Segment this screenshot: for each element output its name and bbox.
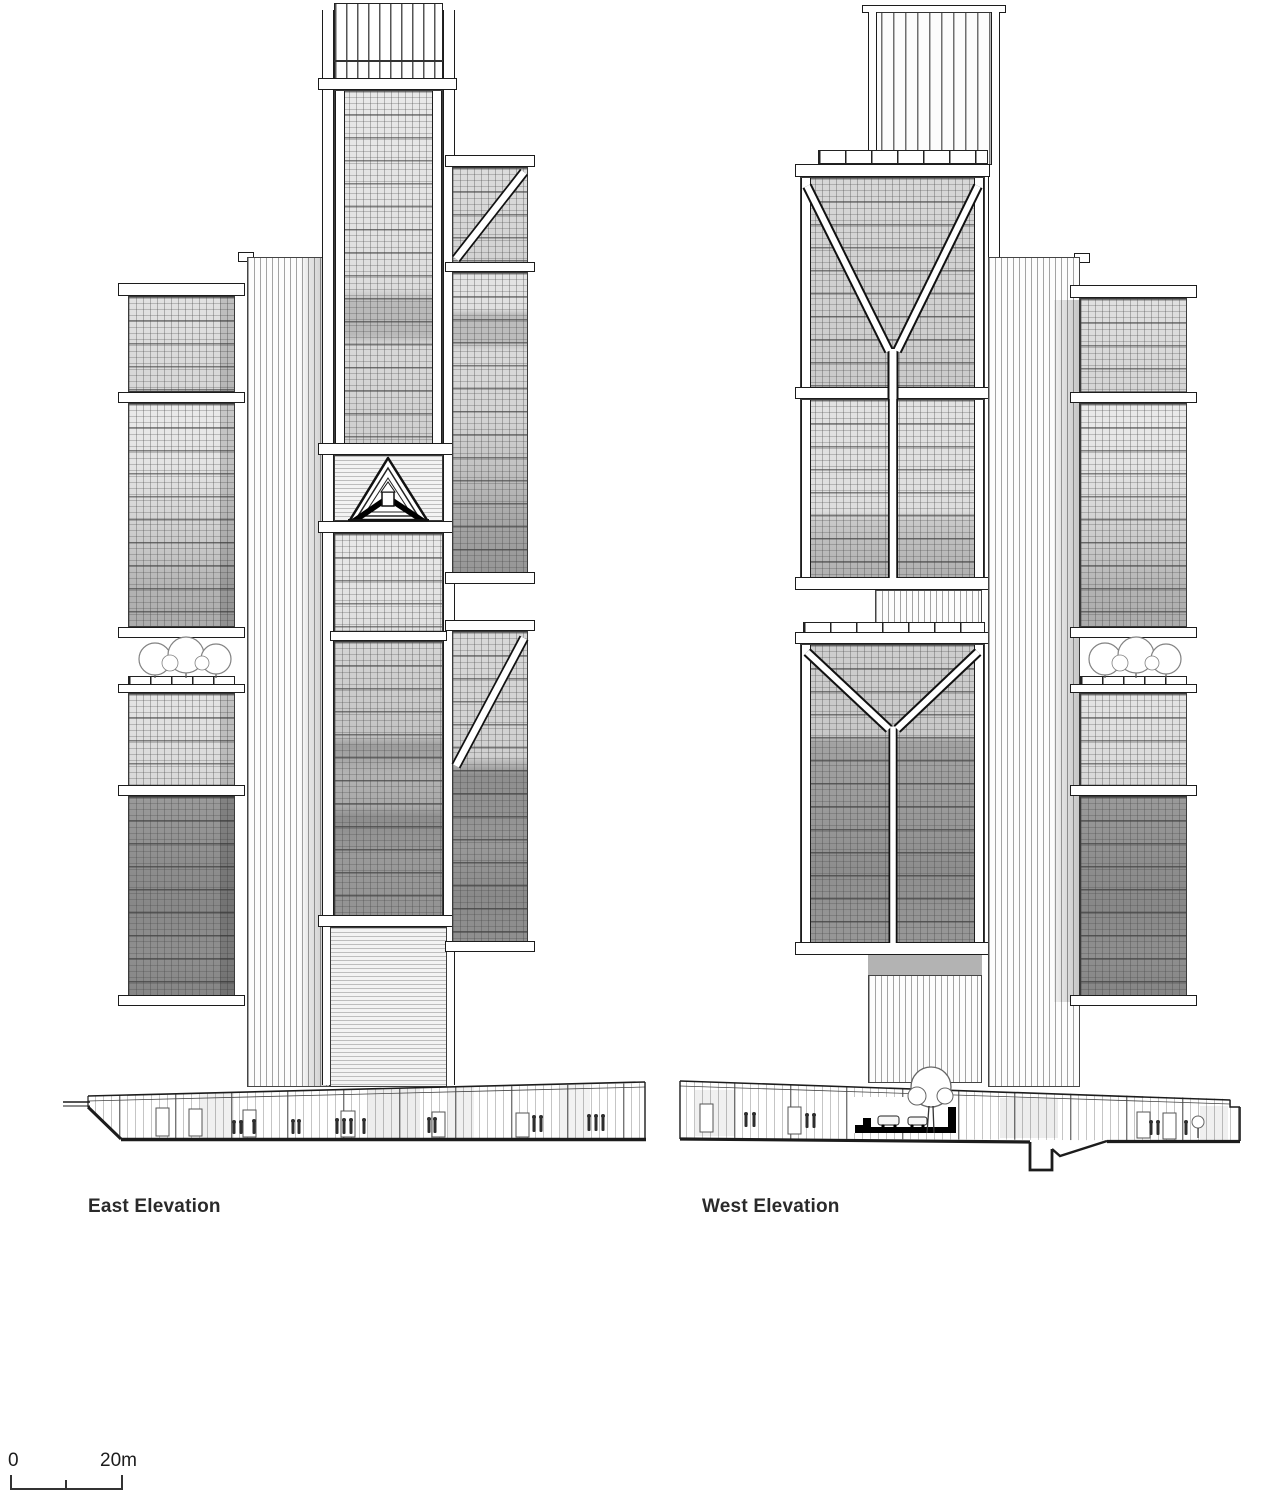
east-right-box-b xyxy=(452,272,528,573)
west-terrace-tree-icon xyxy=(1089,637,1181,678)
west-top-core-frame-right xyxy=(991,12,1000,165)
east-left-slab xyxy=(118,785,245,796)
west-left-slab xyxy=(795,632,990,644)
west-below-core xyxy=(868,975,982,1083)
east-tower-upper-box xyxy=(334,90,443,445)
west-mid-box-frame-right xyxy=(974,400,984,578)
west-left-slab xyxy=(795,387,990,399)
west-mid-box-frame-left xyxy=(801,400,811,578)
east-right-slab xyxy=(445,620,535,631)
east-right-box-c xyxy=(452,631,528,943)
west-mid-box xyxy=(800,399,985,579)
west-right-slab xyxy=(1070,627,1197,638)
east-upper-box-frame-right xyxy=(432,91,442,444)
west-elevation-label: West Elevation xyxy=(702,1196,840,1218)
east-right-slab xyxy=(445,941,535,952)
east-tower-slab xyxy=(330,631,447,641)
west-right-slab xyxy=(1070,684,1197,693)
scale-bar-tick xyxy=(10,1475,12,1489)
scale-end-label: 20m xyxy=(100,1450,137,1472)
west-left-slab xyxy=(795,164,990,177)
east-tower-louver-base xyxy=(330,927,447,1087)
west-main-core-shadow xyxy=(1054,300,1080,1002)
west-top-core xyxy=(868,12,1000,165)
east-upper-box-frame-left xyxy=(335,91,345,444)
east-elevation-label: East Elevation xyxy=(88,1196,221,1218)
east-tower-slab xyxy=(318,521,457,533)
west-right-slab xyxy=(1070,785,1197,796)
east-left-box-2 xyxy=(128,403,235,627)
east-left-box-4 xyxy=(128,796,235,996)
elevation-sheet: East Elevation West Elevation 0 20m xyxy=(0,0,1280,1497)
west-y-box-2-frame-left xyxy=(801,645,811,942)
west-right-box-4 xyxy=(1080,796,1187,996)
east-left-slab xyxy=(118,627,245,638)
east-right-slab xyxy=(445,572,535,584)
east-right-box-a xyxy=(452,167,528,263)
scale-bar-tick xyxy=(65,1480,67,1489)
east-right-slab xyxy=(445,262,535,272)
west-right-slab xyxy=(1070,285,1197,298)
east-left-slab xyxy=(118,684,245,693)
east-terrace-tree-icon xyxy=(139,637,231,678)
east-left-slab xyxy=(118,283,245,296)
east-left-box-3 xyxy=(128,693,235,786)
west-y-box-1-frame-left xyxy=(801,178,811,387)
west-podium-facade xyxy=(678,1076,1242,1172)
east-tower-lower-box xyxy=(334,641,443,917)
east-right-slab xyxy=(445,155,535,167)
scale-start-label: 0 xyxy=(8,1450,19,1472)
east-tower-crown-louvers xyxy=(334,3,443,79)
west-left-slab xyxy=(795,577,990,590)
east-left-box-1 xyxy=(128,296,235,392)
west-right-slab xyxy=(1070,995,1197,1006)
west-left-slab xyxy=(795,942,990,955)
west-right-box-2 xyxy=(1080,403,1187,627)
west-link-column xyxy=(988,165,1000,257)
east-tower-slab xyxy=(318,443,457,455)
scale-bar-line xyxy=(10,1488,123,1490)
scale-bar-tick xyxy=(121,1475,123,1489)
east-crown-rail xyxy=(334,60,443,62)
west-slat-row xyxy=(818,150,988,164)
east-tower-slab xyxy=(318,78,457,90)
west-top-core-frame-left xyxy=(868,12,877,165)
scale-bar: 0 20m xyxy=(8,1450,168,1494)
west-right-slab xyxy=(1070,392,1197,403)
west-y-box-1-frame-right xyxy=(974,178,984,387)
east-left-slab xyxy=(118,995,245,1006)
west-below-shadow xyxy=(868,955,982,975)
west-right-box-3 xyxy=(1080,693,1187,786)
east-tower-mid-box xyxy=(334,533,443,633)
west-core-segment xyxy=(875,590,982,623)
east-tower-slab xyxy=(318,915,457,927)
west-y-box-2-frame-right xyxy=(974,645,984,942)
west-y-box-2 xyxy=(800,644,985,943)
west-right-box-1 xyxy=(1080,298,1187,393)
east-left-slab xyxy=(118,392,245,403)
east-a-frame-panel xyxy=(334,455,443,521)
west-y-box-1 xyxy=(800,177,985,388)
